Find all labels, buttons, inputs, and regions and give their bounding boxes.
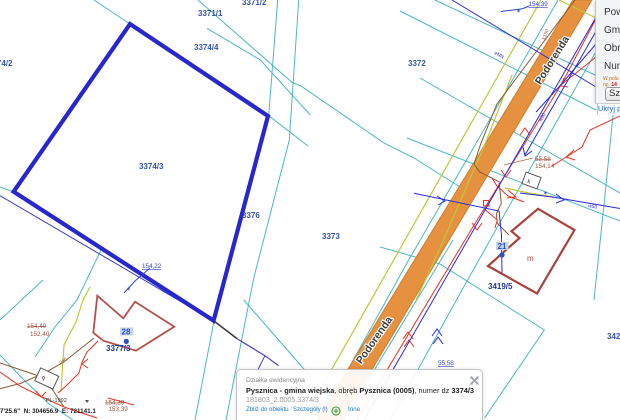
svg-text:m: m — [527, 254, 534, 263]
svg-text:3372: 3372 — [408, 59, 426, 68]
svg-text:3377/3: 3377/3 — [106, 344, 131, 353]
svg-text:154,22: 154,22 — [142, 263, 162, 270]
svg-text:3419/5: 3419/5 — [488, 282, 513, 291]
svg-text:154,40: 154,40 — [27, 323, 47, 330]
svg-text:3371/1: 3371/1 — [198, 9, 223, 18]
svg-text:21: 21 — [498, 242, 507, 251]
svg-text:3373: 3373 — [322, 232, 340, 241]
svg-text:✶: ✶ — [126, 286, 131, 293]
svg-text:✶: ✶ — [516, 8, 521, 15]
svg-text:3374/4: 3374/4 — [194, 43, 219, 52]
svg-text:3371/2: 3371/2 — [242, 0, 267, 7]
svg-text:153,39: 153,39 — [109, 406, 129, 413]
svg-text:✶: ✶ — [543, 190, 548, 197]
svg-text:154,39: 154,39 — [529, 1, 549, 8]
svg-text:3421: 3421 — [607, 332, 620, 341]
svg-text:28: 28 — [122, 328, 131, 337]
svg-text:3376: 3376 — [242, 211, 260, 220]
svg-text:55,58: 55,58 — [438, 360, 454, 367]
svg-text:152,40: 152,40 — [30, 331, 50, 338]
svg-text:154,14: 154,14 — [535, 163, 555, 170]
svg-text:3374/2: 3374/2 — [0, 59, 13, 68]
svg-text:3374/3: 3374/3 — [139, 162, 164, 171]
svg-text:55,58: 55,58 — [535, 156, 551, 163]
